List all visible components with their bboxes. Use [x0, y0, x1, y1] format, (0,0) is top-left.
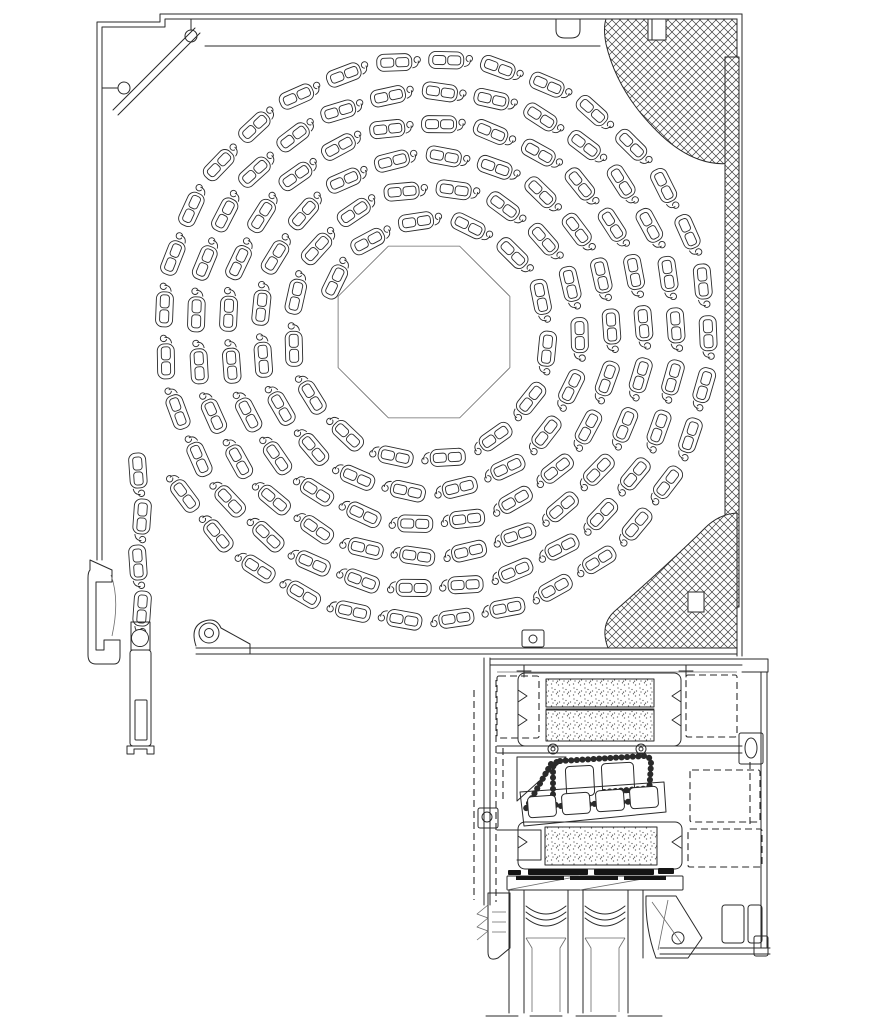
profile-circle: [132, 630, 149, 647]
profile-rect: [527, 795, 556, 818]
technical-drawing-svg: [0, 0, 882, 1024]
foam-core: [546, 679, 654, 707]
profile-rect: [688, 592, 704, 612]
profile-rect: [595, 789, 624, 812]
profile-rect: [565, 765, 595, 796]
profile-rect: [658, 868, 674, 874]
foam-core: [545, 827, 657, 865]
profile-rect: [528, 869, 588, 875]
profile-rect: [508, 870, 521, 875]
profile-rect: [561, 792, 590, 815]
profile-rect: [624, 876, 666, 880]
profile-rect: [570, 876, 618, 880]
foam-core: [546, 710, 654, 741]
profile-rect: [594, 869, 654, 875]
profile-rect: [516, 876, 564, 880]
profile-rect: [629, 786, 658, 809]
drawing-canvas: [0, 0, 882, 1024]
